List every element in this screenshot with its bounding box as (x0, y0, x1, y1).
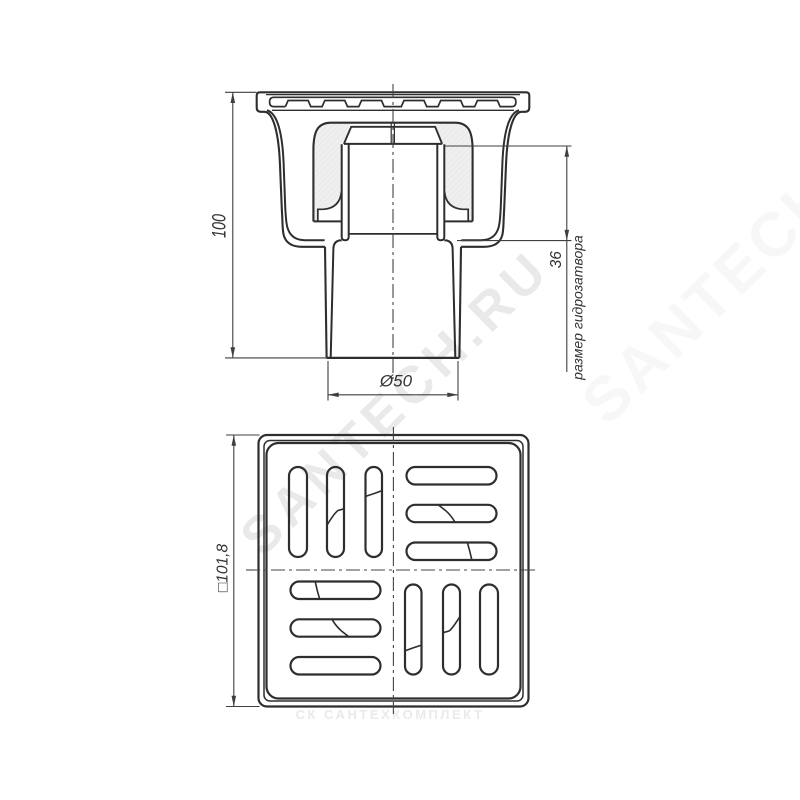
svg-text:SANTECH.RU: SANTECH.RU (229, 239, 561, 567)
svg-text:SANTECH.RU: SANTECH.RU (569, 75, 800, 437)
svg-text:36: 36 (548, 251, 565, 269)
svg-text:100: 100 (210, 214, 231, 238)
svg-text:размер гидрозатвора: размер гидрозатвора (570, 235, 586, 381)
svg-text:Ø50: Ø50 (379, 372, 413, 391)
svg-text:СК САНТЕХКОМПЛЕКТ: СК САНТЕХКОМПЛЕКТ (296, 707, 485, 722)
svg-text:□101,8: □101,8 (214, 544, 231, 593)
